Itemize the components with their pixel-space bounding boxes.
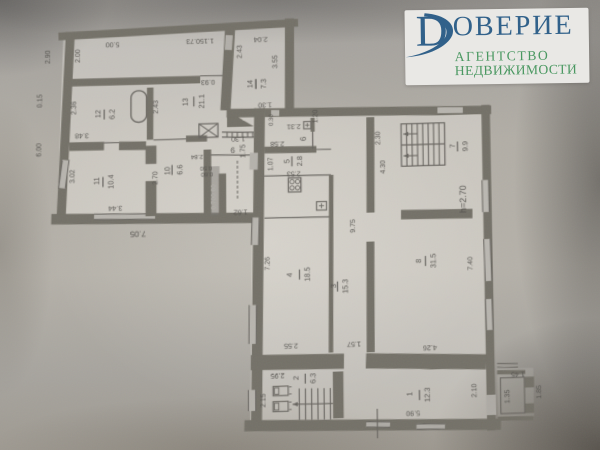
- svg-text:НЕДВИЖИМОСТИ: НЕДВИЖИМОСТИ: [455, 61, 578, 78]
- svg-text:ОВЕРИЕ: ОВЕРИЕ: [453, 10, 574, 43]
